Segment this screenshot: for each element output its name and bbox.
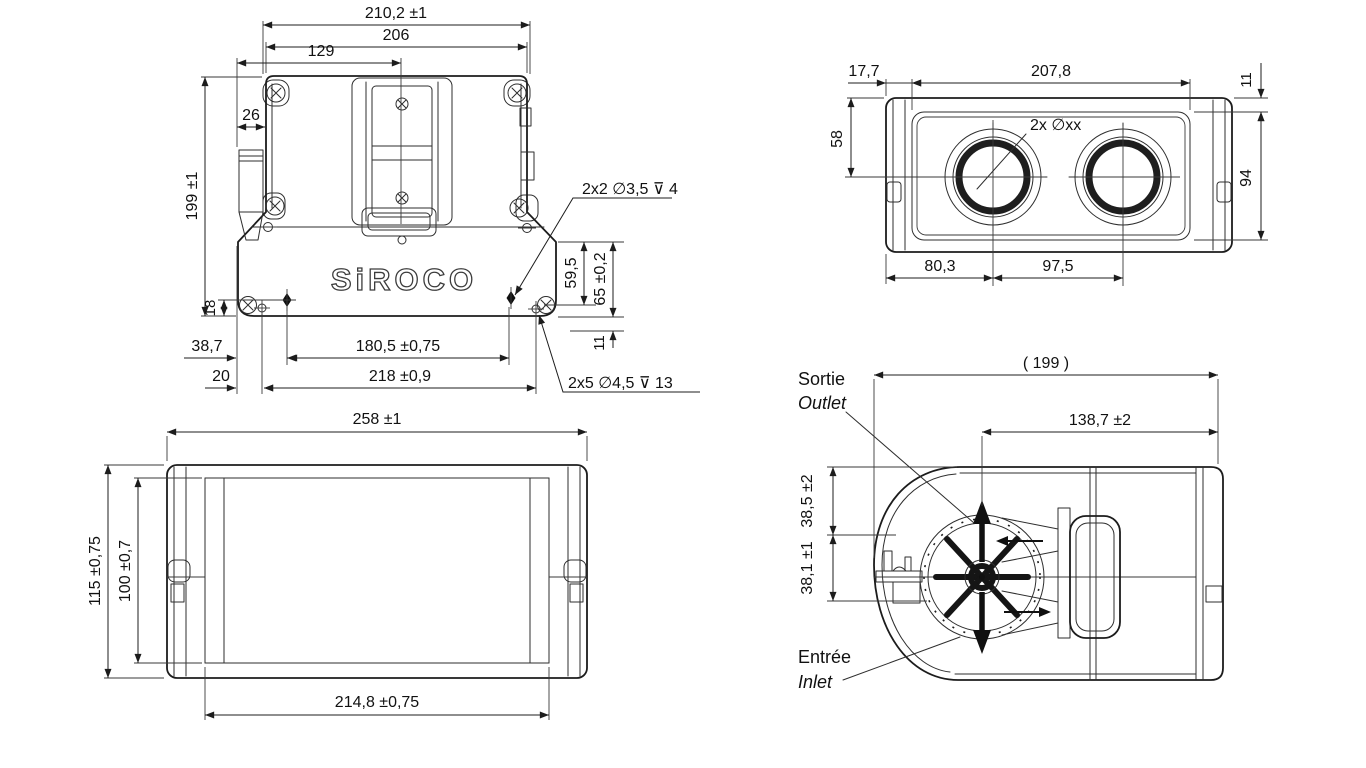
- side-extension-lines: [827, 379, 1218, 601]
- dim-top-inset: 11: [1238, 72, 1255, 88]
- dim-front-drop1: 59,5: [563, 257, 580, 288]
- side-view: ( 199 ) 138,7 ±2 38,5 ±2 38,1 ±1 Sortie …: [798, 355, 1223, 692]
- siroco-logo: SiROCO: [331, 262, 477, 297]
- label-inlet-fr: Entrée: [798, 647, 851, 667]
- front-dimensions: 210,2 ±1 206 129 26 199 ±1 18 38,7 20 18…: [184, 5, 700, 392]
- dim-bottom-overall-height: 115 ±0,75: [87, 536, 104, 606]
- dim-front-left-offset: 38,7: [191, 338, 222, 355]
- side-dimensions: ( 199 ) 138,7 ±2 38,5 ±2 38,1 ±1 Sortie …: [798, 355, 1218, 692]
- label-outlet-fr: Sortie: [798, 369, 845, 389]
- bottom-dimensions: 258 ±1 115 ±0,75 100 ±0,7 214,8 ±0,75: [87, 411, 587, 715]
- siroco-dimensional-drawing: SiROCO 210,2 ±1 206 129: [0, 0, 1366, 768]
- dim-front-foot: 18: [202, 300, 219, 317]
- dim-front-overall-height: 199 ±1: [184, 171, 201, 220]
- dim-bottom-inner-width: 214,8 ±0,75: [335, 694, 420, 711]
- clip-left-foot: [171, 584, 184, 602]
- label-inlet-en: Inlet: [798, 672, 833, 692]
- top-view: 17,7 207,8 11 58 94 2x ∅xx 80,3 97,5: [829, 63, 1268, 286]
- dim-top-panel-width: 207,8: [1031, 63, 1071, 80]
- dim-side-overall-depth: ( 199 ): [1023, 355, 1069, 372]
- dim-side-motor-span: 138,7 ±2: [1069, 412, 1131, 429]
- dim-front-step: 11: [591, 335, 608, 351]
- dim-top-port-spacing: 97,5: [1042, 258, 1073, 275]
- dim-front-drop2: 65 ±0,2: [592, 252, 609, 305]
- top-extension-lines: [847, 79, 1268, 284]
- dim-front-overall-width: 210,2 ±1: [365, 5, 427, 22]
- dim-front-center-offset: 129: [308, 43, 335, 60]
- bottom-housing-outline: [167, 465, 587, 678]
- dim-side-axis-drop: 38,1 ±1: [799, 541, 816, 594]
- callout-upper-holes: 2x2 ∅3,5 ⊽ 4: [582, 181, 678, 198]
- dim-side-outlet-drop: 38,5 ±2: [799, 474, 816, 527]
- clip-right: [564, 560, 586, 582]
- dim-bottom-inner-height: 100 ±0,7: [117, 540, 134, 602]
- side-housing-outline: [874, 467, 1223, 680]
- central-channel: [352, 78, 452, 225]
- dim-top-port-drop: 58: [829, 130, 846, 148]
- side-clip: [1206, 586, 1222, 602]
- dim-top-edge-inset: 17,7: [848, 63, 879, 80]
- dim-front-body-width: 206: [383, 27, 410, 44]
- clip-right-foot: [570, 584, 583, 602]
- top-dimensions: 17,7 207,8 11 58 94 2x ∅xx 80,3 97,5: [829, 63, 1261, 278]
- bottom-plate: [362, 208, 436, 244]
- technical-drawing-canvas: SiROCO 210,2 ±1 206 129: [0, 0, 1366, 768]
- dim-front-hole-span: 180,5 ±0,75: [356, 338, 441, 355]
- side-tab: [520, 108, 531, 126]
- dim-front-edge-hole: 20: [212, 368, 230, 385]
- callout-ports: 2x ∅xx: [1030, 117, 1081, 134]
- front-view: SiROCO 210,2 ±1 206 129: [184, 5, 700, 394]
- dim-bottom-overall-width: 258 ±1: [353, 411, 402, 428]
- dim-top-panel-height: 94: [1238, 169, 1255, 187]
- dim-top-port-offset: 80,3: [924, 258, 955, 275]
- clip-left: [887, 182, 901, 202]
- dim-front-mount-span: 218 ±0,9: [369, 368, 431, 385]
- callout-lower-holes: 2x5 ∅4,5 ⊽ 13: [568, 375, 673, 392]
- label-outlet-en: Outlet: [798, 393, 847, 413]
- clip-right: [1217, 182, 1231, 202]
- clip-left: [168, 560, 190, 582]
- dim-front-connector: 26: [242, 107, 260, 124]
- bottom-view: 258 ±1 115 ±0,75 100 ±0,7 214,8 ±0,75: [87, 411, 587, 720]
